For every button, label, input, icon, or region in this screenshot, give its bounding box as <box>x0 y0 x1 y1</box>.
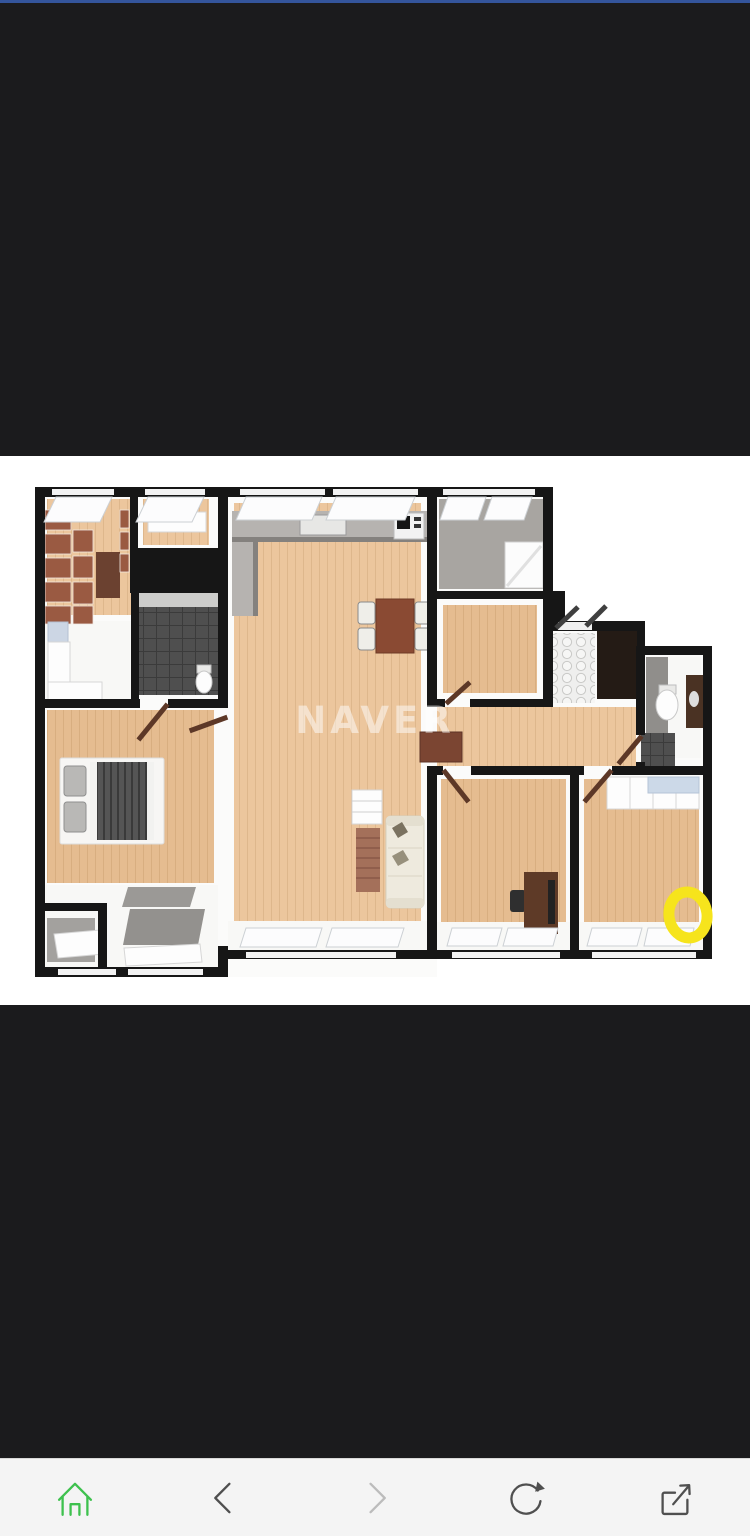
browser-toolbar <box>0 1458 750 1536</box>
closet <box>607 777 699 809</box>
refresh-icon <box>502 1475 548 1521</box>
chevron-left-icon <box>202 1475 248 1521</box>
floorplan-image: NAVER <box>0 456 750 1005</box>
sofa <box>386 816 424 908</box>
refresh-button[interactable] <box>450 1459 600 1536</box>
master-bed <box>60 758 164 844</box>
hallway-floor <box>437 707 636 766</box>
forward-button[interactable] <box>300 1459 450 1536</box>
desk-chair <box>48 622 68 644</box>
naver-watermark: NAVER <box>295 699 455 742</box>
toilet-bath2 <box>656 685 678 720</box>
dining-table <box>376 599 414 653</box>
toilet-bath1 <box>196 665 212 693</box>
back-button[interactable] <box>150 1459 300 1536</box>
floorplan-image-view[interactable]: NAVER <box>0 456 750 1005</box>
tv-cabinet <box>352 790 382 824</box>
media-console <box>356 828 380 892</box>
home-button[interactable] <box>0 1459 150 1536</box>
letterbox-top <box>0 3 750 456</box>
entry-hex-tile-floor <box>553 633 595 703</box>
share-icon <box>652 1475 698 1521</box>
home-icon <box>52 1475 98 1521</box>
letterbox-bottom <box>0 1005 750 1458</box>
share-button[interactable] <box>600 1459 750 1536</box>
chevron-right-icon <box>352 1475 398 1521</box>
phone-screen: NAVER <box>0 0 750 1536</box>
shoe-cabinet <box>597 631 637 699</box>
pantry-room-floor <box>443 605 537 693</box>
